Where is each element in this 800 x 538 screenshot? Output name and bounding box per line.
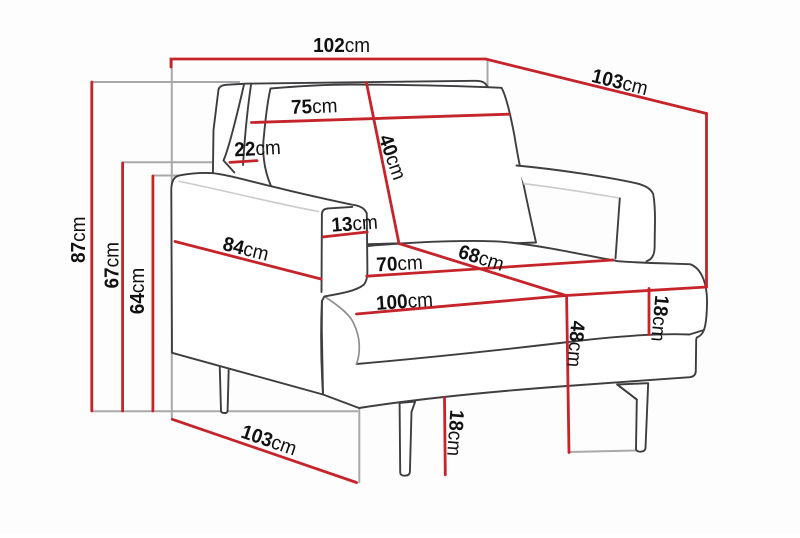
svg-text:18cm: 18cm — [442, 409, 468, 457]
svg-text:64cm: 64cm — [127, 268, 150, 314]
svg-text:75cm: 75cm — [291, 95, 338, 119]
svg-text:22cm: 22cm — [234, 137, 282, 162]
svg-text:87cm: 87cm — [68, 217, 91, 263]
svg-text:102cm: 102cm — [313, 35, 370, 58]
svg-text:67cm: 67cm — [101, 242, 124, 288]
svg-text:70cm: 70cm — [376, 252, 424, 277]
svg-text:100cm: 100cm — [375, 289, 433, 315]
svg-text:13cm: 13cm — [331, 211, 379, 237]
svg-text:48cm: 48cm — [562, 320, 589, 368]
svg-text:18cm: 18cm — [646, 294, 673, 342]
